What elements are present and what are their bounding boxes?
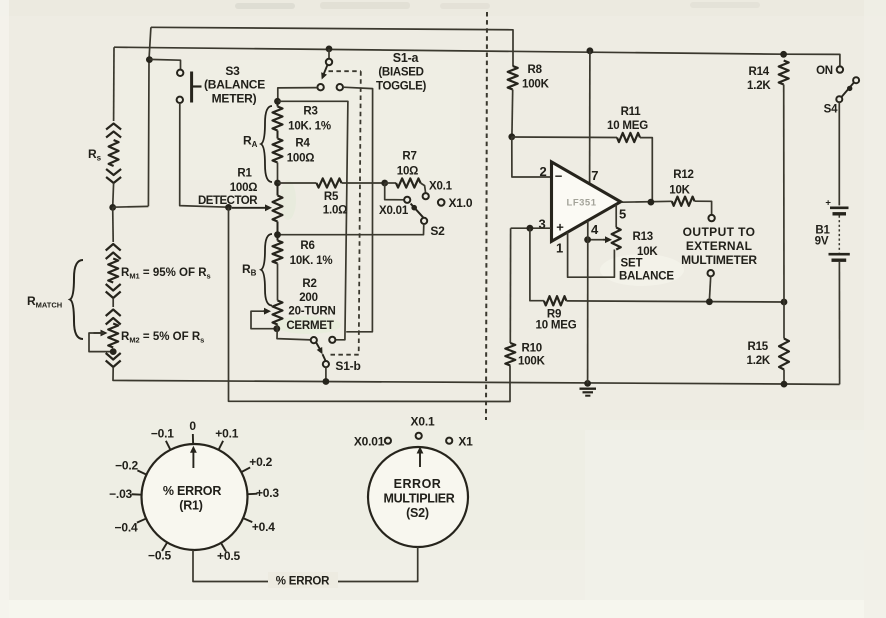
svg-text:+0.1: +0.1 (215, 427, 238, 441)
svg-text:1: 1 (556, 241, 563, 256)
svg-text:R15: R15 (748, 341, 769, 353)
svg-text:R5: R5 (324, 191, 339, 203)
svg-text:ON: ON (816, 65, 833, 77)
svg-text:100K: 100K (522, 79, 550, 91)
svg-text:R6: R6 (300, 240, 314, 252)
svg-text:X0.1: X0.1 (429, 180, 453, 192)
svg-text:1.2K: 1.2K (747, 355, 771, 367)
svg-text:1.0Ω: 1.0Ω (323, 205, 347, 217)
svg-text:(S2): (S2) (406, 506, 429, 520)
svg-text:R10: R10 (522, 343, 543, 355)
svg-text:5: 5 (619, 207, 626, 222)
svg-text:TOGGLE): TOGGLE) (376, 80, 427, 92)
svg-text:X1.0: X1.0 (449, 196, 473, 210)
svg-text:% ERROR: % ERROR (276, 576, 330, 588)
svg-text:−.03: −.03 (109, 487, 132, 501)
svg-text:S1-a: S1-a (393, 51, 420, 65)
svg-text:R2: R2 (302, 278, 316, 290)
svg-text:S2: S2 (430, 224, 445, 238)
svg-text:X1: X1 (458, 435, 473, 449)
svg-text:S1-b: S1-b (335, 359, 360, 373)
svg-text:7: 7 (591, 168, 598, 183)
svg-text:R7: R7 (402, 151, 416, 163)
svg-text:200: 200 (299, 292, 318, 304)
svg-text:R3: R3 (303, 106, 317, 118)
svg-text:METER): METER) (212, 91, 257, 105)
svg-text:2: 2 (539, 164, 546, 179)
svg-text:−0.1: −0.1 (151, 427, 174, 441)
svg-text:10K: 10K (669, 185, 690, 197)
svg-text:CERMET: CERMET (286, 320, 334, 332)
svg-text:9V: 9V (815, 236, 829, 248)
svg-text:10 MEG: 10 MEG (536, 320, 577, 332)
svg-text:SET: SET (621, 258, 643, 270)
svg-text:−: − (555, 169, 563, 184)
svg-text:% ERROR: % ERROR (163, 484, 222, 498)
svg-text:100K: 100K (518, 356, 546, 368)
svg-text:10 MEG: 10 MEG (607, 120, 648, 132)
svg-text:ERROR: ERROR (394, 477, 442, 491)
svg-text:MULTIMETER: MULTIMETER (681, 253, 757, 267)
svg-text:+0.4: +0.4 (252, 520, 275, 534)
svg-text:+: + (556, 220, 564, 235)
svg-text:100Ω: 100Ω (287, 153, 315, 165)
svg-text:X0.01: X0.01 (379, 205, 409, 217)
svg-text:R14: R14 (749, 66, 770, 78)
svg-text:MULTIPLIER: MULTIPLIER (383, 492, 454, 506)
svg-text:R11: R11 (621, 106, 642, 118)
svg-text:10K: 10K (637, 246, 658, 258)
svg-text:EXTERNAL: EXTERNAL (686, 239, 752, 253)
svg-text:−0.2: −0.2 (115, 458, 138, 472)
svg-text:10K. 1%: 10K. 1% (288, 121, 331, 133)
svg-text:−0.5: −0.5 (148, 548, 171, 562)
svg-text:4: 4 (591, 222, 599, 237)
svg-text:DETECTOR: DETECTOR (198, 195, 258, 207)
svg-text:S4: S4 (824, 104, 838, 116)
svg-text:−0.4: −0.4 (115, 521, 138, 535)
svg-text:+0.5: +0.5 (217, 549, 240, 563)
svg-text:X0.1: X0.1 (411, 415, 435, 429)
svg-text:+0.3: +0.3 (256, 486, 279, 500)
svg-text:(BALANCE: (BALANCE (204, 78, 265, 92)
svg-text:R8: R8 (528, 64, 543, 76)
svg-text:100Ω: 100Ω (230, 182, 258, 194)
svg-text:X0.01: X0.01 (354, 435, 385, 449)
svg-text:+0.2: +0.2 (249, 455, 272, 469)
svg-text:R12: R12 (673, 169, 694, 181)
svg-text:10K. 1%: 10K. 1% (290, 255, 333, 267)
svg-text:OUTPUT TO: OUTPUT TO (683, 225, 756, 239)
svg-text:20-TURN: 20-TURN (288, 306, 335, 318)
svg-text:10Ω: 10Ω (397, 166, 418, 178)
svg-text:R4: R4 (295, 138, 310, 150)
svg-text:3: 3 (538, 217, 545, 232)
svg-text:R13: R13 (633, 231, 654, 243)
svg-text:1.2K: 1.2K (747, 80, 771, 92)
svg-text:R1: R1 (237, 168, 252, 180)
svg-text:BALANCE: BALANCE (619, 271, 674, 283)
svg-text:LF351: LF351 (567, 198, 597, 209)
svg-text:S3: S3 (225, 64, 240, 78)
svg-text:(R1): (R1) (179, 499, 203, 513)
svg-text:0: 0 (189, 419, 196, 433)
svg-text:(BIASED: (BIASED (378, 67, 423, 79)
